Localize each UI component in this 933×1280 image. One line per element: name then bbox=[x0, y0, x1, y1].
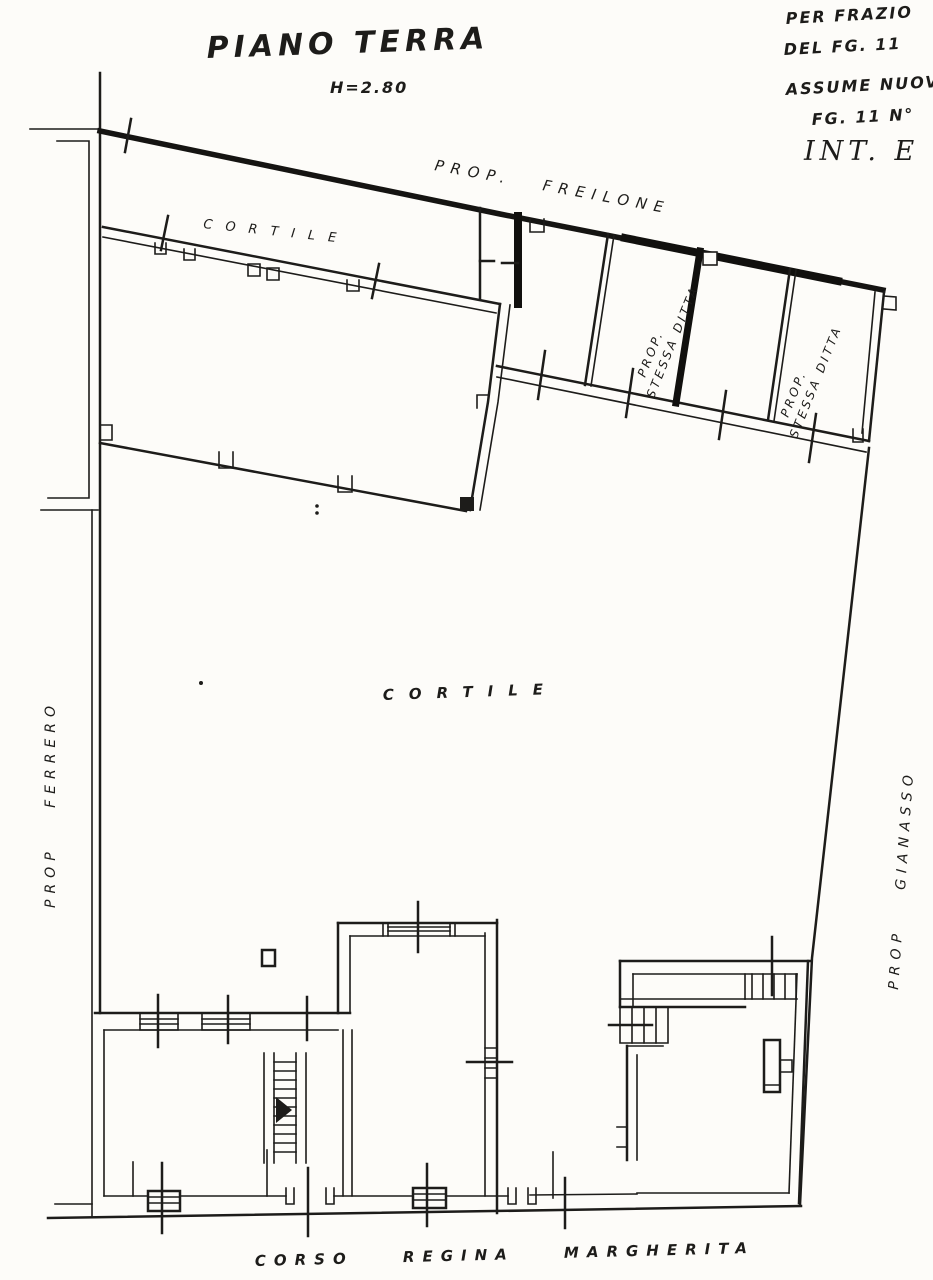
plan-title: PIANO TERRA bbox=[206, 21, 490, 66]
scanned-floor-plan-page: PIANO TERRA H=2.80 PER FRAZIO DEL FG. 11… bbox=[0, 0, 933, 1280]
note-line-4: FG. 11 N° bbox=[811, 105, 915, 129]
same-owner-label-1: PROP. STESSA DITTA bbox=[629, 278, 702, 400]
north-boundary-wall bbox=[100, 119, 883, 290]
street-rooms-left bbox=[133, 950, 553, 1198]
west-owner-label: PROP FERRERO bbox=[43, 700, 59, 908]
main-courtyard bbox=[199, 681, 203, 685]
street-wall bbox=[48, 1163, 801, 1236]
corner-notes: PER FRAZIO DEL FG. 11 ASSUME NUOV FG. 11… bbox=[783, 2, 933, 167]
same-owner-label-2: PROP. STESSA DITTA bbox=[772, 318, 845, 440]
ceiling-height-note: H=2.80 bbox=[330, 78, 408, 97]
upper-courtyard-label: CORTILE bbox=[203, 217, 350, 247]
note-line-3: ASSUME NUOV bbox=[783, 72, 933, 99]
interno-label: INT. E bbox=[803, 136, 919, 167]
lower-right-building bbox=[609, 937, 810, 1203]
note-line-1: PER FRAZIO bbox=[785, 2, 913, 28]
titleblock: PIANO TERRA H=2.80 bbox=[206, 21, 490, 97]
mid-courtyard-wall bbox=[95, 995, 350, 1047]
upper-left-building bbox=[100, 216, 510, 515]
staircase-left bbox=[264, 1053, 306, 1163]
main-courtyard-label: CORTILE bbox=[383, 680, 559, 704]
east-owner-label: PROP GIANASSO bbox=[886, 769, 917, 991]
note-line-2: DEL FG. 11 bbox=[783, 34, 902, 59]
lower-left-annex bbox=[338, 902, 512, 1213]
east-boundary-wall bbox=[800, 448, 869, 1205]
floor-plan: PIANO TERRA H=2.80 PER FRAZIO DEL FG. 11… bbox=[0, 0, 933, 1280]
west-boundary-wall bbox=[30, 73, 112, 1217]
street-label: CORSO REGINA MARGHERITA bbox=[255, 1239, 755, 1270]
